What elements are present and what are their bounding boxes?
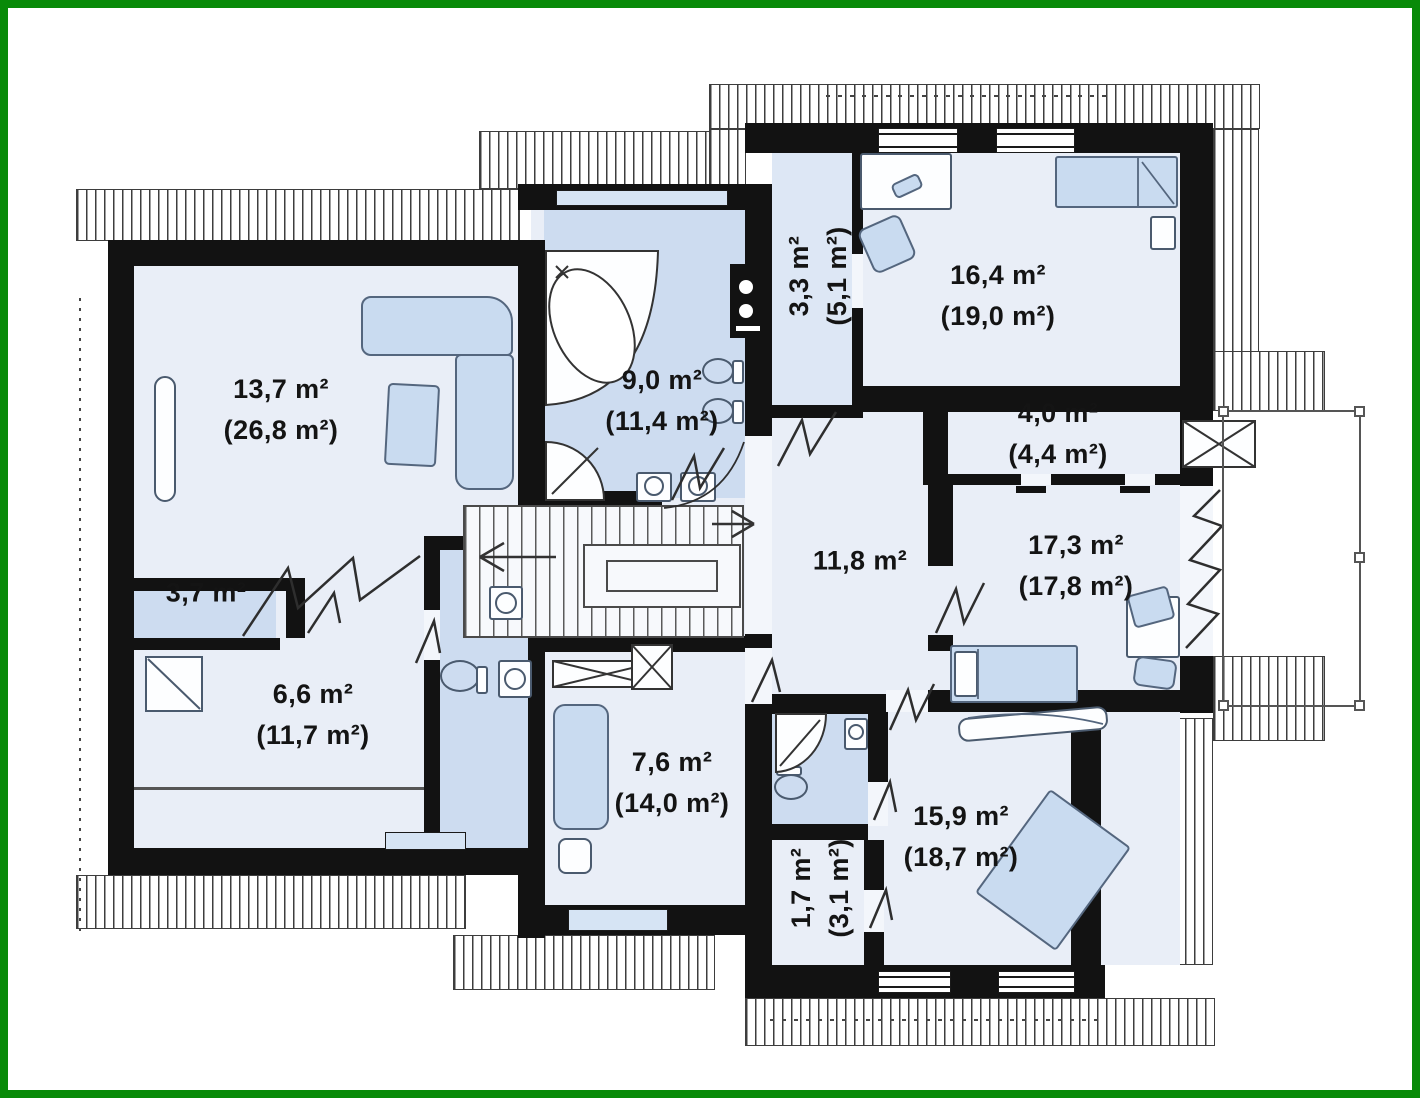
plan-symbols	[8, 8, 1420, 1098]
room-area: 1,7 m²	[782, 838, 820, 937]
room-label-bedroom3: 15,9 m² (18,7 m²)	[904, 796, 1019, 878]
room-area: 11,8 m²	[813, 541, 907, 582]
room-area: 6,6 m²	[256, 674, 369, 715]
door-opening-icon	[243, 412, 1222, 928]
room-label-living: 13,7 m² (26,8 m²)	[224, 369, 339, 451]
room-label-bedroom2: 17,3 m² (17,8 m²)	[1019, 525, 1134, 607]
roof-outline-dashed	[80, 96, 1108, 1020]
room-label-bathroom2: 6,6 m² (11,7 m²)	[256, 674, 369, 756]
room-label-wardrobe: 3,7 m²	[166, 573, 246, 614]
room-area: 4,0 m²	[1008, 393, 1107, 434]
stairs-direction-arrows	[480, 511, 754, 571]
room-area: 16,4 m²	[941, 255, 1056, 296]
floor-plan: 13,7 m² (26,8 m²) 9,0 m² (11,4 m²) 3,3 m…	[0, 0, 1420, 1098]
room-area-total: (14,0 m²)	[615, 783, 730, 824]
room-area: 15,9 m²	[904, 796, 1019, 837]
room-area-total: (4,4 m²)	[1008, 434, 1107, 475]
door-swing-arc	[664, 442, 744, 508]
room-label-closet: 4,0 m² (4,4 m²)	[1008, 393, 1107, 475]
room-label-room76: 7,6 m² (14,0 m²)	[615, 742, 730, 824]
room-area-total: (11,4 m²)	[605, 401, 718, 442]
room-area: 3,3 m²	[780, 226, 818, 325]
room-area: 3,7 m²	[166, 573, 246, 614]
room-label-hall: 11,8 m²	[813, 541, 907, 582]
room-label-bedroom1: 16,4 m² (19,0 m²)	[941, 255, 1056, 337]
room-area-total: (19,0 m²)	[941, 296, 1056, 337]
room-area-total: (5,1 m²)	[818, 226, 856, 325]
room-label-storage: 1,7 m² (3,1 m²)	[782, 838, 858, 937]
room-area-total: (18,7 m²)	[904, 837, 1019, 878]
room-area: 13,7 m²	[224, 369, 339, 410]
room-area-total: (26,8 m²)	[224, 410, 339, 451]
room-area-total: (3,1 m²)	[820, 838, 858, 937]
room-area-total: (11,7 m²)	[256, 715, 369, 756]
room-area: 17,3 m²	[1019, 525, 1134, 566]
room-area-total: (17,8 m²)	[1019, 566, 1134, 607]
room-area: 9,0 m²	[605, 360, 718, 401]
room-label-bathroom: 9,0 m² (11,4 m²)	[605, 360, 718, 442]
room-area: 7,6 m²	[615, 742, 730, 783]
room-label-corridor: 3,3 m² (5,1 m²)	[780, 226, 856, 325]
shower-icon	[148, 442, 826, 772]
